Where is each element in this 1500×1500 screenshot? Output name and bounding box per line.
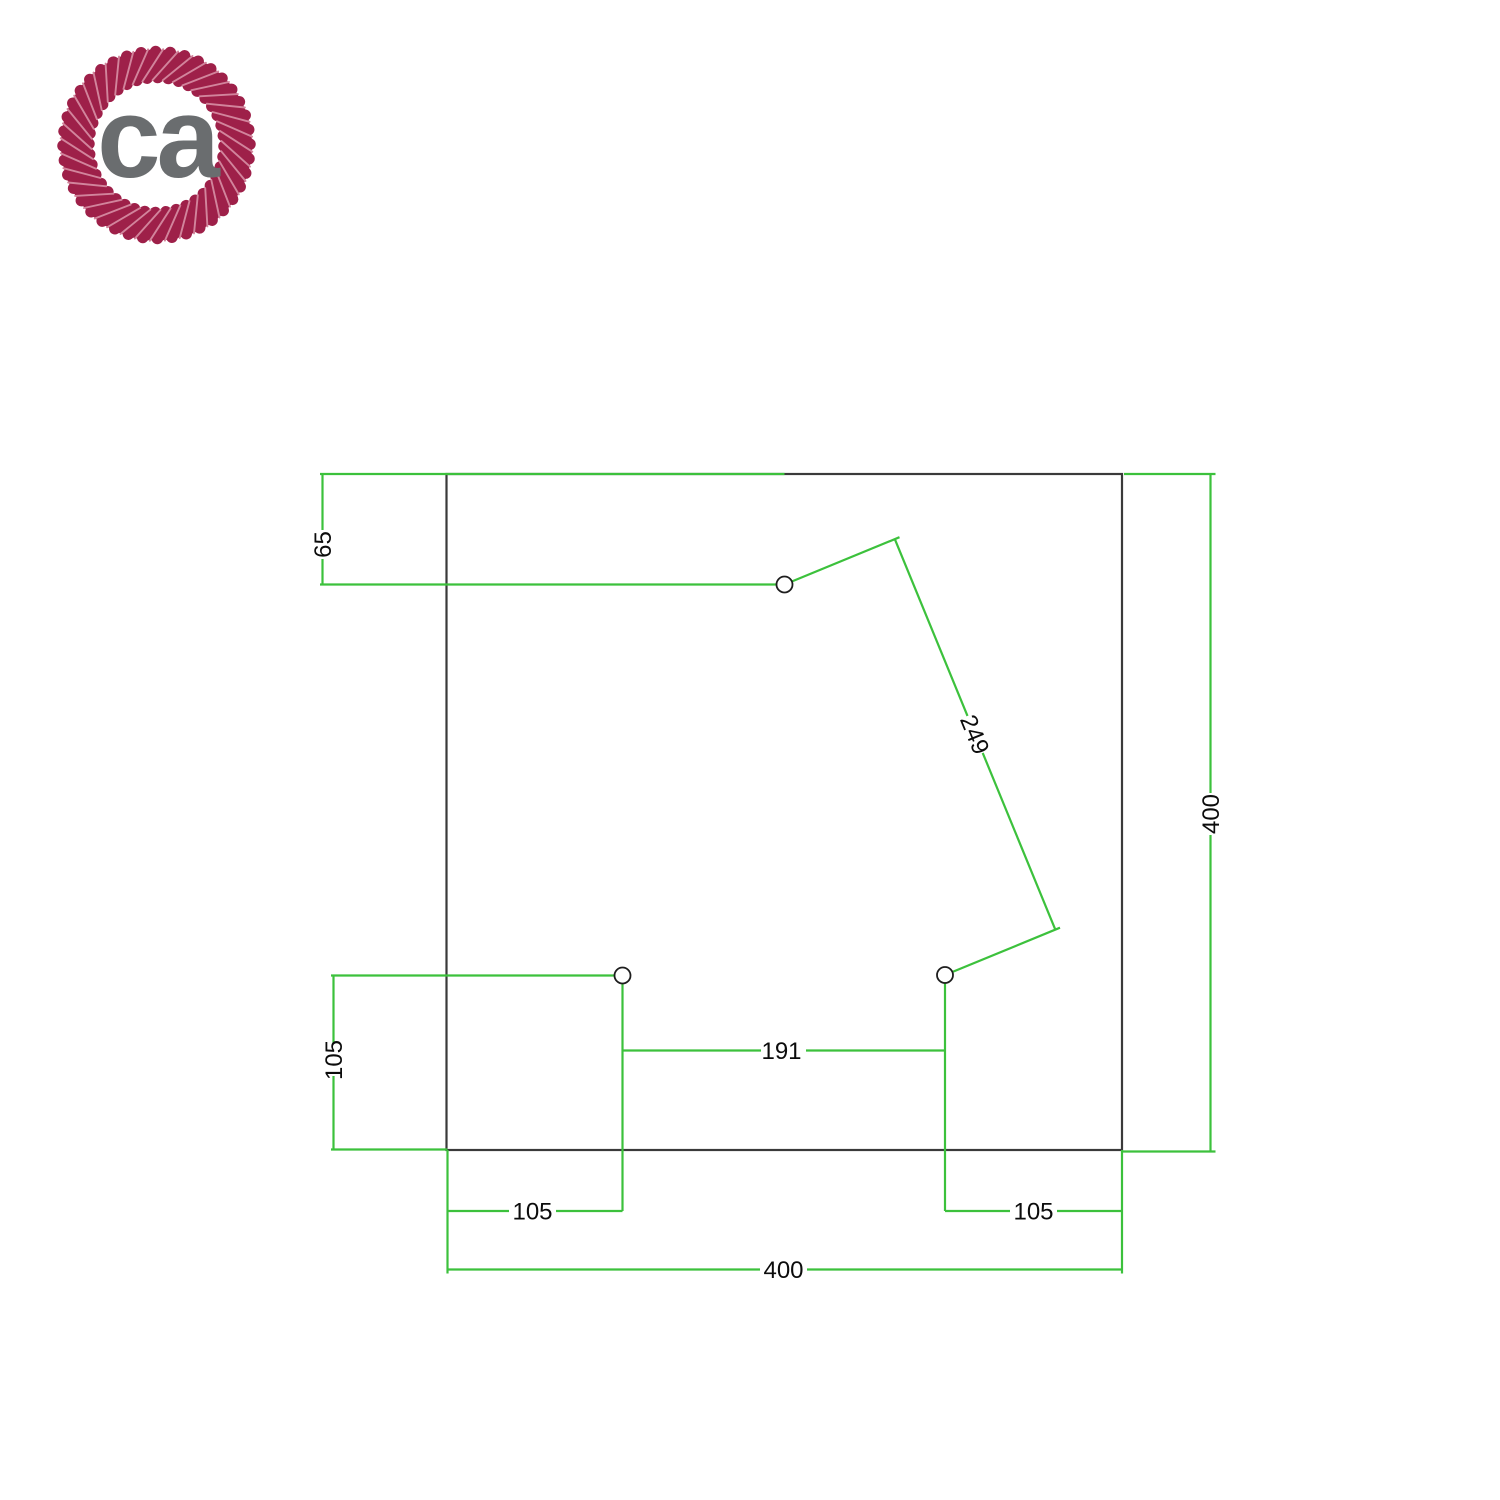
svg-text:ca: ca: [97, 75, 221, 202]
svg-text:105: 105: [512, 1199, 552, 1226]
svg-text:105: 105: [1013, 1199, 1053, 1226]
svg-text:191: 191: [761, 1038, 801, 1065]
svg-text:400: 400: [1198, 794, 1225, 834]
svg-text:65: 65: [310, 531, 337, 558]
svg-text:400: 400: [763, 1257, 803, 1284]
svg-text:105: 105: [321, 1040, 348, 1080]
